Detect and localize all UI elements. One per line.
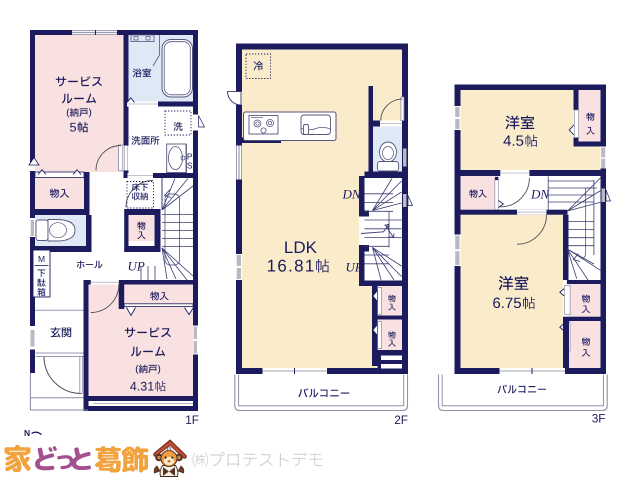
svg-text:2F: 2F [394, 413, 408, 427]
svg-text:1F: 1F [185, 413, 199, 427]
svg-text:N: N [24, 428, 30, 438]
svg-text:UP: UP [346, 260, 363, 275]
svg-text:UP: UP [128, 259, 145, 274]
svg-text:DN: DN [342, 187, 362, 202]
svg-text:M: M [38, 254, 45, 264]
svg-text:DN: DN [530, 187, 550, 202]
svg-text:S: S [187, 161, 193, 171]
svg-text:LDK: LDK [284, 238, 318, 257]
svg-text:3F: 3F [592, 412, 606, 426]
